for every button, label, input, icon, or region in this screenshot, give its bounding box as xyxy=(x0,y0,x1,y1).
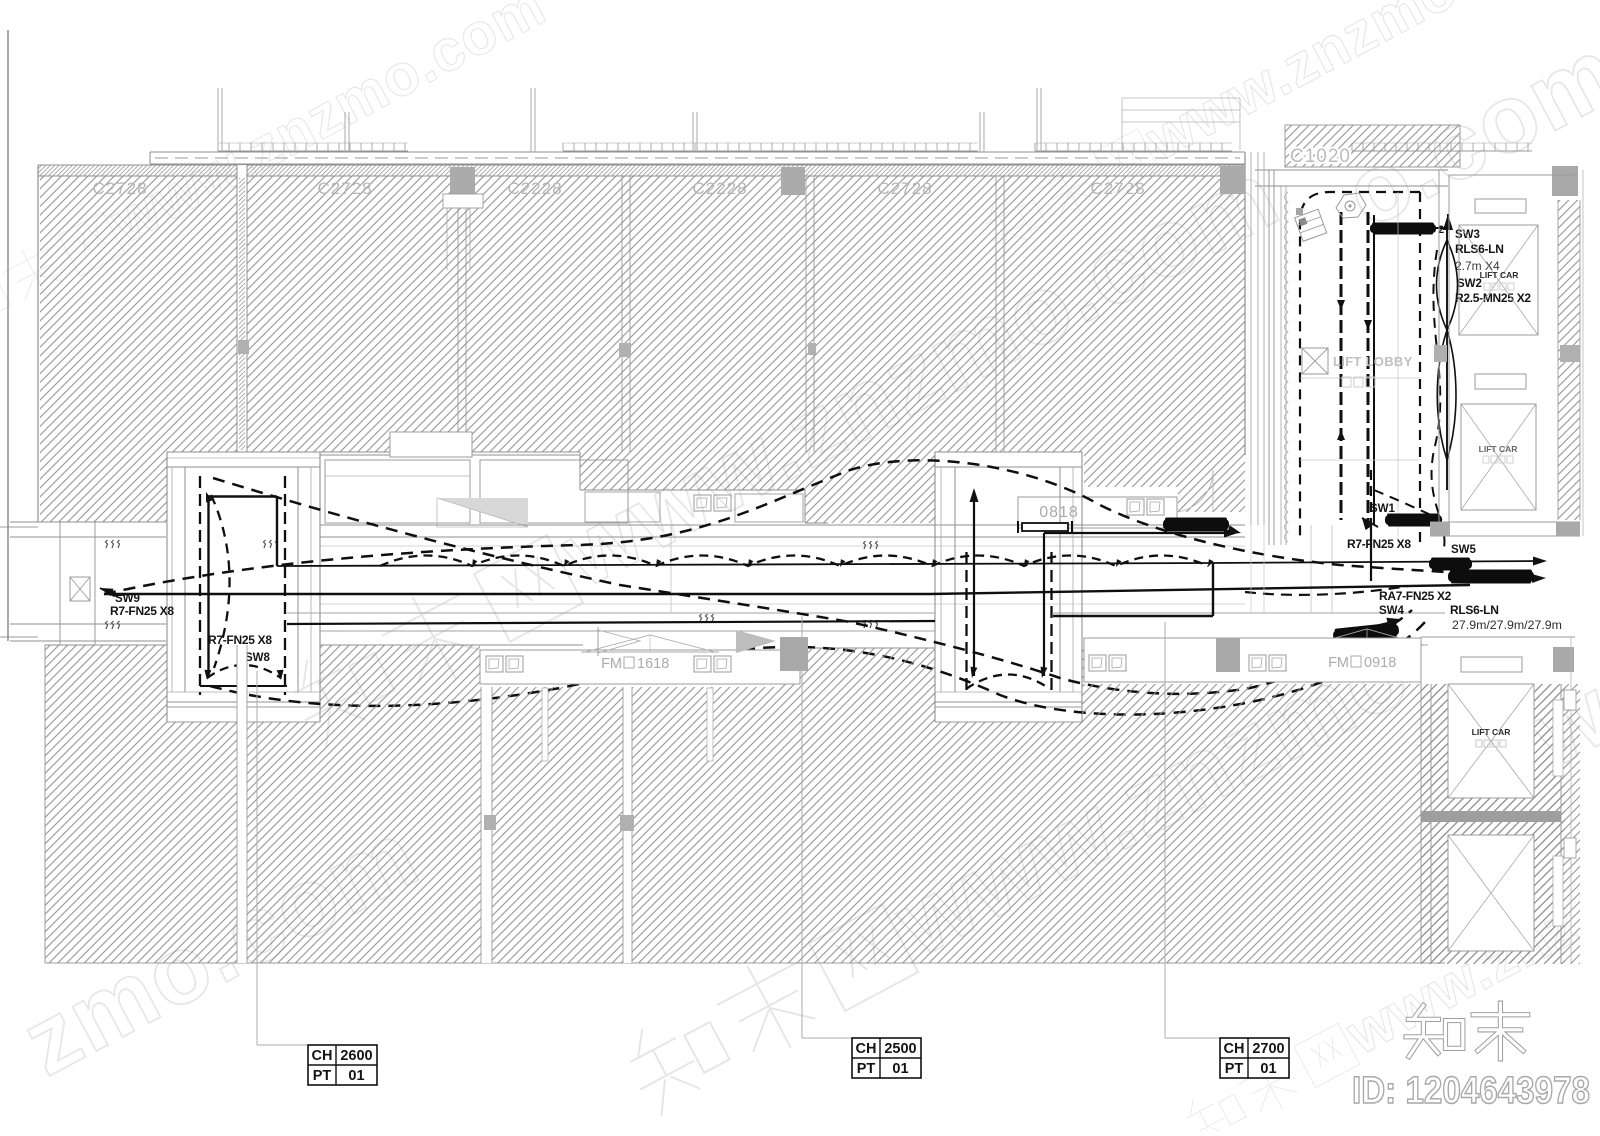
svg-text:R7-FN25 X8: R7-FN25 X8 xyxy=(1347,537,1411,551)
svg-text:C2228: C2228 xyxy=(692,179,747,198)
svg-text:C2728: C2728 xyxy=(877,179,932,198)
svg-text:LIFT CAR: LIFT CAR xyxy=(1479,444,1518,454)
svg-text:CH: CH xyxy=(856,1041,877,1057)
svg-text:SW5: SW5 xyxy=(1451,544,1477,556)
svg-text:SW4: SW4 xyxy=(1379,605,1405,617)
svg-text:PT: PT xyxy=(857,1061,876,1077)
svg-text:01: 01 xyxy=(348,1068,364,1084)
svg-text:2700: 2700 xyxy=(1252,1041,1284,1057)
svg-text:R7-FN25 X8: R7-FN25 X8 xyxy=(110,604,174,618)
svg-text:SW8: SW8 xyxy=(245,652,271,664)
svg-text:LIFT CAR: LIFT CAR xyxy=(1480,270,1519,280)
svg-text:PT: PT xyxy=(1225,1061,1244,1077)
svg-text:C2728: C2728 xyxy=(92,179,147,198)
svg-text:01: 01 xyxy=(892,1061,908,1077)
svg-text:R2.5-MN25 X2: R2.5-MN25 X2 xyxy=(1455,291,1531,305)
svg-text:SW1: SW1 xyxy=(1370,503,1396,515)
svg-text:ID: 1204643978: ID: 1204643978 xyxy=(1352,1070,1590,1112)
svg-text:LIFT LOBBY: LIFT LOBBY xyxy=(1333,354,1413,369)
svg-text:C1020: C1020 xyxy=(1290,146,1351,167)
svg-text:C2728: C2728 xyxy=(1090,179,1145,198)
svg-text:RA7-FN25 X2: RA7-FN25 X2 xyxy=(1379,589,1452,603)
svg-text:0918: 0918 xyxy=(1364,655,1396,671)
svg-text:C2228: C2228 xyxy=(507,179,562,198)
svg-text:1618: 1618 xyxy=(637,656,669,672)
svg-text:FM: FM xyxy=(601,656,622,672)
svg-text:R7-FN25 X8: R7-FN25 X8 xyxy=(208,633,272,647)
svg-text:SW2: SW2 xyxy=(1457,278,1482,290)
svg-text:2600: 2600 xyxy=(340,1048,372,1064)
svg-text:PT: PT xyxy=(313,1068,332,1084)
svg-text:C2728: C2728 xyxy=(317,179,372,198)
svg-text:CH: CH xyxy=(312,1048,333,1064)
svg-text:LIFT CAR: LIFT CAR xyxy=(1472,727,1511,737)
svg-text:CH: CH xyxy=(1224,1041,1245,1057)
svg-text:01: 01 xyxy=(1260,1061,1276,1077)
svg-text:27.9m/27.9m/27.9m: 27.9m/27.9m/27.9m xyxy=(1452,618,1562,632)
svg-text:FM: FM xyxy=(1328,655,1349,671)
svg-text:2500: 2500 xyxy=(884,1041,916,1057)
svg-text:RLS6-LN: RLS6-LN xyxy=(1450,603,1499,617)
